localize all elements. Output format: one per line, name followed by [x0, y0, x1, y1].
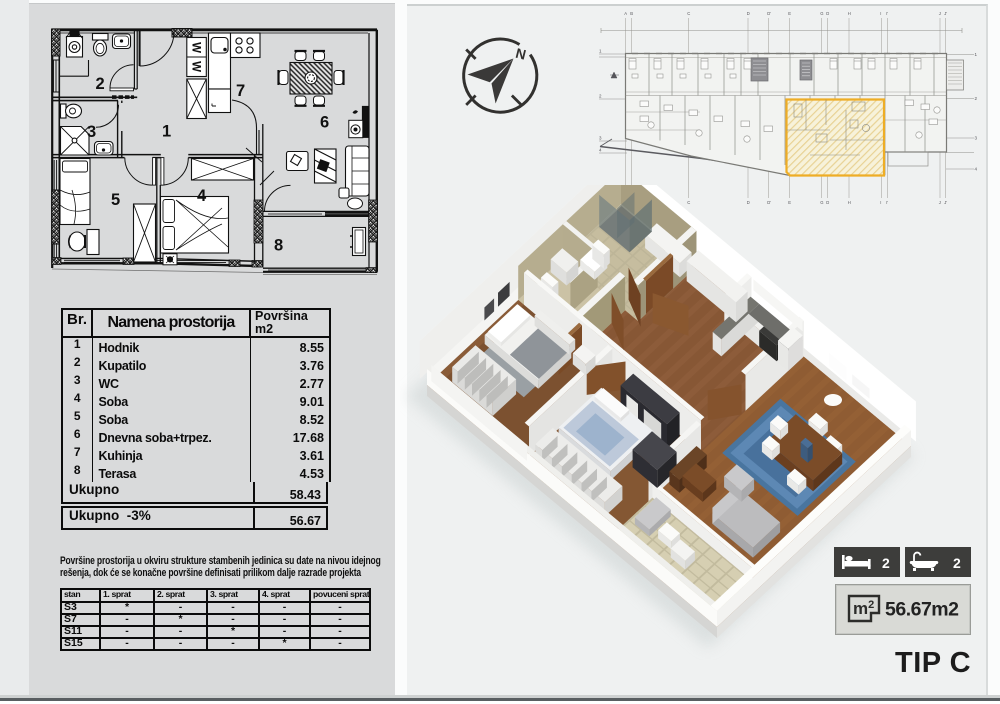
svg-text:8: 8	[274, 237, 283, 255]
svg-text:G: G	[820, 11, 823, 16]
svg-text:1: 1	[599, 49, 602, 54]
svg-text:2: 2	[975, 96, 978, 101]
svg-text:3: 3	[975, 136, 978, 141]
svg-text:6: 6	[320, 114, 329, 132]
svg-text:1: 1	[162, 123, 171, 141]
svg-text:56.67m2: 56.67m2	[885, 599, 959, 621]
svg-text:J': J'	[944, 11, 947, 16]
svg-text:3: 3	[87, 123, 96, 141]
svg-text:B: B	[630, 11, 633, 16]
svg-text:2: 2	[96, 75, 105, 93]
svg-text:D: D	[747, 11, 750, 16]
svg-text:I: I	[880, 11, 881, 16]
svg-text:W: W	[190, 61, 202, 72]
svg-text:7: 7	[236, 82, 245, 100]
svg-text:4: 4	[975, 167, 978, 172]
svg-text:2: 2	[599, 94, 602, 99]
svg-text:D: D	[826, 11, 829, 16]
svg-text:N: N	[514, 45, 528, 63]
svg-text:4: 4	[197, 187, 207, 205]
svg-text:C: C	[687, 11, 690, 16]
svg-text:A: A	[624, 11, 627, 16]
svg-text:I': I'	[886, 11, 888, 16]
svg-text:E: E	[788, 11, 791, 16]
svg-text:H: H	[848, 11, 851, 16]
svg-text:2: 2	[953, 555, 961, 571]
svg-text:5: 5	[111, 191, 120, 209]
svg-text:4: 4	[599, 148, 602, 153]
svg-text:1: 1	[975, 52, 978, 57]
svg-text:D': D'	[767, 11, 771, 16]
svg-text:3: 3	[599, 136, 602, 141]
svg-text:2: 2	[882, 555, 890, 571]
svg-text:W: W	[190, 42, 202, 53]
svg-text:J: J	[939, 11, 941, 16]
